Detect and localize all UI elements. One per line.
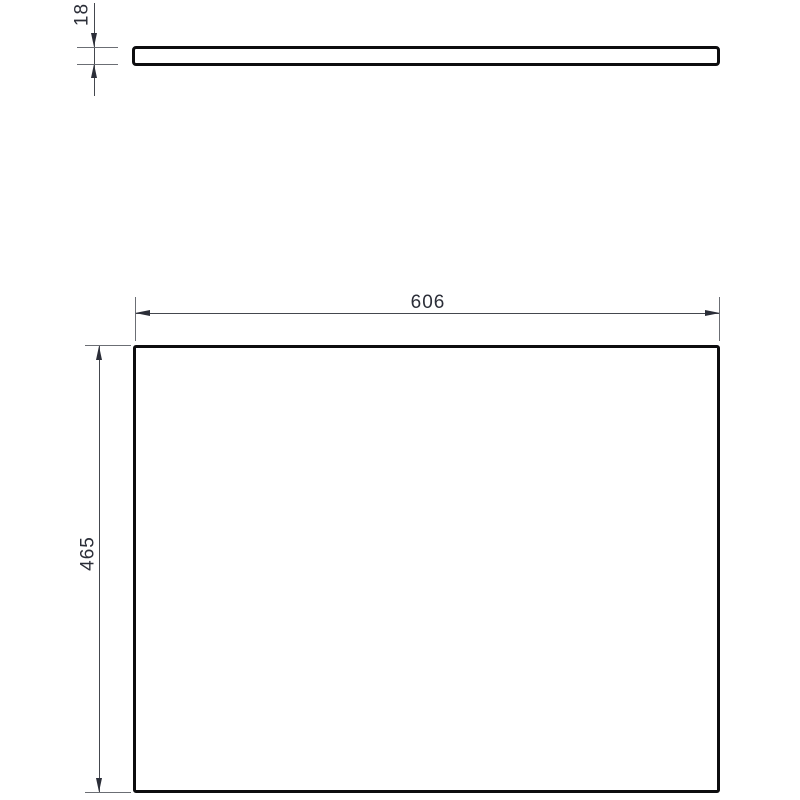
- width-arrow-right-icon: [705, 310, 720, 316]
- thickness-extension-line-top: [77, 47, 118, 48]
- width-extension-line-right: [719, 297, 720, 341]
- thickness-extension-line-bottom: [77, 64, 118, 65]
- front-view-panel-outline: [133, 345, 720, 793]
- thickness-dimension-label: 18: [73, 0, 92, 35]
- width-extension-line-left: [135, 297, 136, 341]
- drawing-canvas: 18 606 465: [0, 0, 800, 800]
- height-dimension-line: [99, 346, 100, 792]
- side-view-panel-outline: [132, 46, 720, 66]
- height-extension-line-top: [85, 345, 131, 346]
- height-extension-line-bottom: [85, 792, 131, 793]
- height-arrow-up-icon: [96, 346, 102, 360]
- width-dimension-line: [135, 313, 720, 314]
- width-dimension-label: 606: [398, 293, 458, 312]
- thickness-arrow-down-icon: [91, 33, 97, 47]
- width-arrow-left-icon: [135, 310, 150, 316]
- thickness-arrow-up-icon: [91, 64, 97, 78]
- thickness-dimension-line: [94, 3, 95, 96]
- height-dimension-label: 465: [79, 524, 98, 584]
- height-arrow-down-icon: [96, 778, 102, 792]
